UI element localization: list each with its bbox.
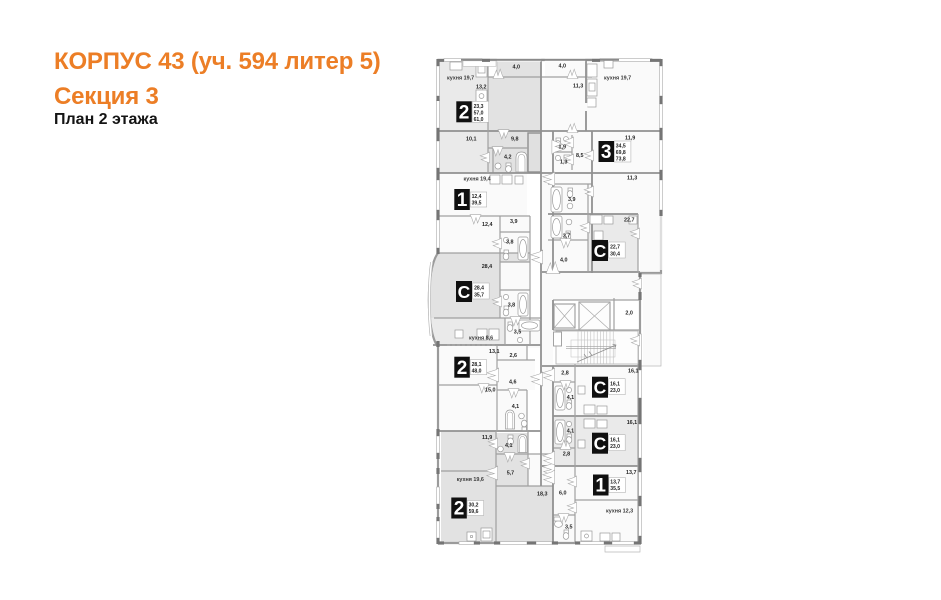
svg-text:кухня 12,3: кухня 12,3 <box>606 509 633 515</box>
svg-text:1: 1 <box>595 476 606 497</box>
svg-text:5,7: 5,7 <box>507 471 515 477</box>
svg-text:59,6: 59,6 <box>469 509 479 515</box>
svg-text:4,1: 4,1 <box>512 404 520 410</box>
svg-text:23,0: 23,0 <box>610 388 620 394</box>
svg-text:35,7: 35,7 <box>474 292 484 298</box>
svg-text:3,8: 3,8 <box>508 303 516 309</box>
svg-text:2: 2 <box>454 499 465 520</box>
svg-text:30,4: 30,4 <box>610 251 620 257</box>
svg-text:18,3: 18,3 <box>537 492 548 498</box>
svg-text:69,8: 69,8 <box>616 150 626 156</box>
svg-text:С: С <box>458 282 471 302</box>
svg-text:С: С <box>594 434 607 454</box>
svg-text:кухня 8,6: кухня 8,6 <box>469 336 493 342</box>
svg-text:3,8: 3,8 <box>506 240 514 246</box>
svg-text:15,0: 15,0 <box>485 388 496 394</box>
svg-text:1,3: 1,3 <box>560 160 568 166</box>
svg-text:28,1: 28,1 <box>472 362 482 368</box>
svg-text:12,4: 12,4 <box>482 222 493 228</box>
svg-text:1: 1 <box>457 190 468 211</box>
svg-text:61,0: 61,0 <box>474 117 484 123</box>
svg-text:48,0: 48,0 <box>472 368 482 374</box>
svg-text:39,5: 39,5 <box>472 201 482 207</box>
svg-text:22,7: 22,7 <box>610 245 620 251</box>
svg-text:13,7: 13,7 <box>610 480 620 486</box>
svg-text:16,1: 16,1 <box>610 437 620 443</box>
svg-text:2,8: 2,8 <box>563 452 571 458</box>
svg-text:4,2: 4,2 <box>504 155 512 161</box>
svg-text:30,2: 30,2 <box>469 503 479 509</box>
svg-text:3,5: 3,5 <box>565 525 573 531</box>
svg-text:16,1: 16,1 <box>628 369 639 375</box>
svg-text:6,0: 6,0 <box>559 491 567 497</box>
svg-text:3,7: 3,7 <box>563 234 571 240</box>
svg-text:4,1: 4,1 <box>505 443 513 449</box>
svg-text:3,9: 3,9 <box>510 219 518 225</box>
svg-text:11,3: 11,3 <box>573 84 583 90</box>
svg-text:23,3: 23,3 <box>474 104 484 110</box>
svg-text:2: 2 <box>459 103 470 124</box>
svg-text:57,0: 57,0 <box>474 111 484 117</box>
svg-text:11,9: 11,9 <box>625 136 635 142</box>
svg-text:28,4: 28,4 <box>474 286 484 292</box>
svg-text:1,9: 1,9 <box>559 145 567 151</box>
svg-text:4,0: 4,0 <box>513 65 521 71</box>
svg-text:4,1: 4,1 <box>567 395 575 401</box>
svg-text:кухня 19,7: кухня 19,7 <box>604 76 631 82</box>
svg-text:3: 3 <box>601 142 612 163</box>
svg-text:16,1: 16,1 <box>610 381 620 387</box>
svg-text:4,0: 4,0 <box>560 258 568 264</box>
svg-text:2,0: 2,0 <box>625 311 633 317</box>
svg-text:16,1: 16,1 <box>627 420 638 426</box>
svg-text:кухня 19,4: кухня 19,4 <box>464 177 491 183</box>
svg-text:23,0: 23,0 <box>610 444 620 450</box>
svg-text:9,8: 9,8 <box>511 137 519 143</box>
svg-text:22,7: 22,7 <box>624 218 635 224</box>
svg-text:кухня 19,6: кухня 19,6 <box>457 477 484 483</box>
svg-text:4,1: 4,1 <box>567 429 575 435</box>
svg-text:кухня 19,7: кухня 19,7 <box>447 76 474 82</box>
svg-text:13,7: 13,7 <box>626 470 637 476</box>
svg-text:12,4: 12,4 <box>472 194 482 200</box>
svg-text:10,1: 10,1 <box>466 137 477 143</box>
svg-text:2,6: 2,6 <box>510 353 518 359</box>
svg-text:73,8: 73,8 <box>616 157 626 163</box>
svg-text:13,1: 13,1 <box>489 349 500 355</box>
svg-text:3,5: 3,5 <box>514 330 522 336</box>
svg-text:11,3: 11,3 <box>627 176 637 182</box>
svg-text:4,0: 4,0 <box>559 64 567 70</box>
svg-text:С: С <box>594 241 607 261</box>
svg-text:3,9: 3,9 <box>568 197 576 203</box>
svg-text:2: 2 <box>457 358 468 379</box>
svg-text:28,4: 28,4 <box>482 264 493 270</box>
svg-text:11,9: 11,9 <box>482 435 492 441</box>
svg-text:34,5: 34,5 <box>616 144 626 150</box>
svg-text:С: С <box>594 378 607 398</box>
svg-text:2,8: 2,8 <box>561 371 569 377</box>
svg-text:35,5: 35,5 <box>610 486 620 492</box>
svg-text:4,6: 4,6 <box>509 380 517 386</box>
svg-text:13,2: 13,2 <box>476 85 487 91</box>
svg-text:8,5: 8,5 <box>576 153 584 159</box>
